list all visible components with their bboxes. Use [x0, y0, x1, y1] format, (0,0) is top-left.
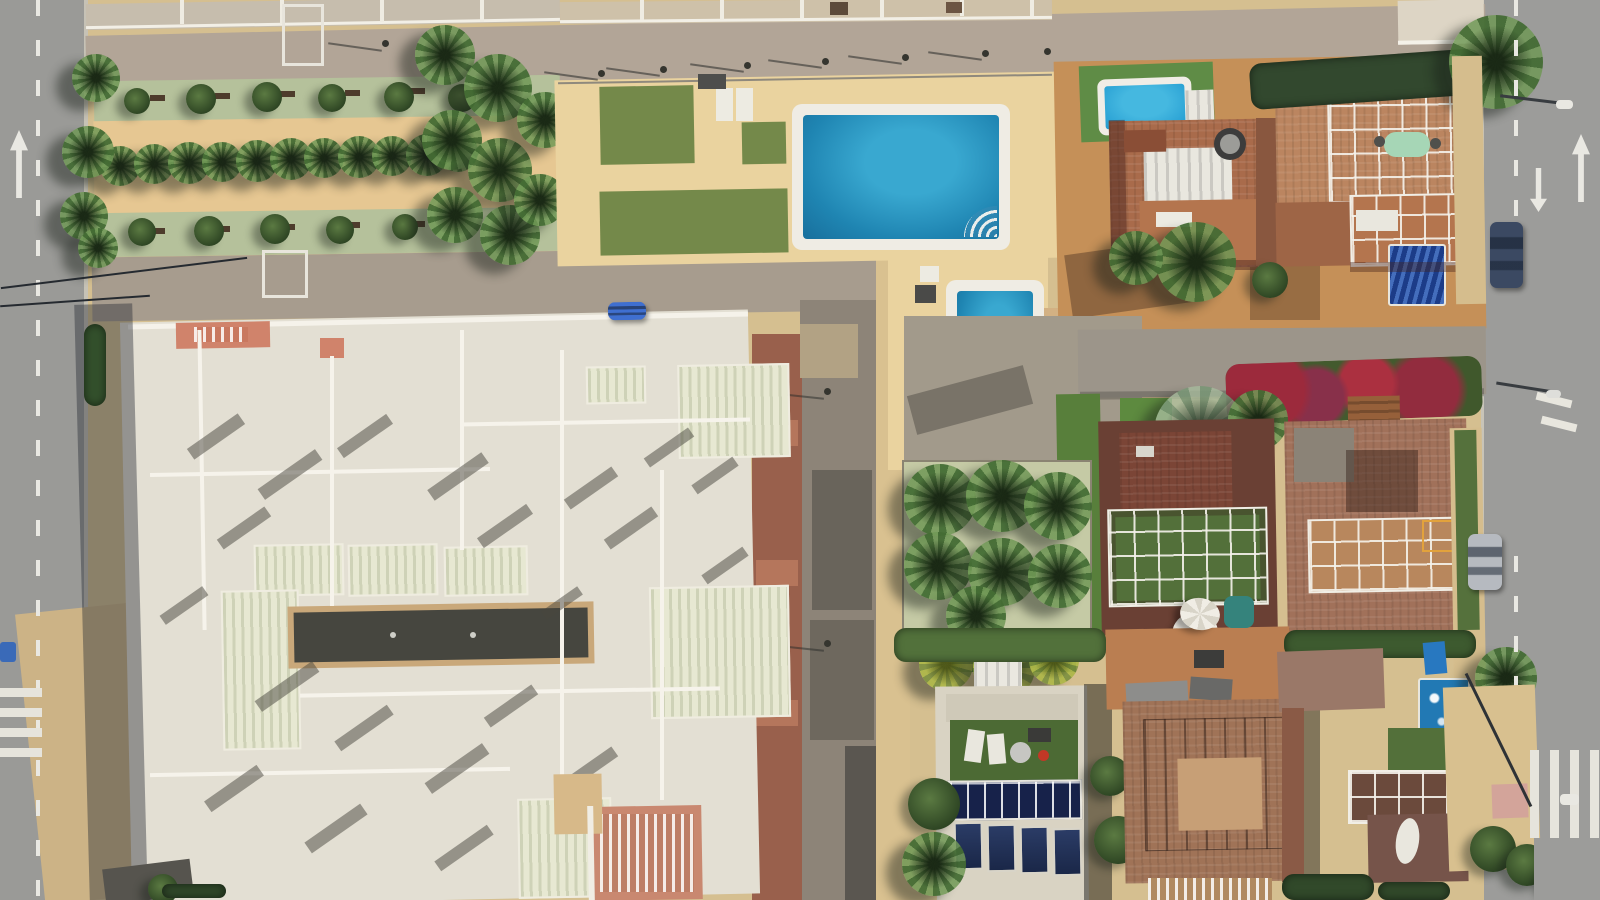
- villa5-solar-array: [948, 779, 1082, 820]
- yard-palm: [1156, 222, 1236, 302]
- park-tree: [392, 214, 418, 240]
- park-pergola-frame: [262, 250, 308, 298]
- garden-hedge: [894, 628, 1106, 662]
- park-tree: [128, 218, 156, 246]
- villa5-flowers: [1038, 750, 1049, 761]
- villa2-chair: [1430, 138, 1441, 149]
- silver-car: [1468, 534, 1502, 590]
- villa5-solar-panel: [987, 824, 1017, 872]
- parapet-line: [660, 470, 664, 800]
- villa7-pool-gear: [1423, 641, 1448, 675]
- villa2-loungers: [1356, 210, 1398, 231]
- parapet-line: [560, 350, 564, 790]
- tan-terrace-south: [553, 774, 602, 835]
- dirt-patch: [800, 324, 858, 378]
- top-doorway: [830, 2, 848, 15]
- park-tree: [318, 84, 346, 112]
- villa5-solar-panel: [1020, 826, 1050, 874]
- park-tree: [186, 84, 216, 114]
- street-palm: [902, 832, 966, 896]
- roadside-palm: [62, 126, 114, 178]
- salmon-stairs: [194, 327, 248, 342]
- top-divider: [480, 0, 484, 22]
- villa6-court: [1177, 757, 1262, 830]
- street-lamp: [1044, 48, 1051, 55]
- villa7-bushes: [1378, 882, 1450, 900]
- park-bench: [150, 95, 165, 101]
- villa2-south-shadow: [1350, 262, 1466, 272]
- top-doorway: [946, 2, 962, 13]
- lawn-upper: [599, 85, 694, 165]
- street-lamp: [660, 66, 667, 73]
- street-palm-shadow: [810, 620, 874, 740]
- street-lamp: [902, 54, 909, 61]
- lane-dash: [36, 0, 40, 900]
- villa2-pool: [1388, 244, 1446, 306]
- garden-palm: [1028, 544, 1092, 608]
- villa3-upper-roof: [1119, 431, 1232, 519]
- top-divider: [180, 0, 184, 24]
- villa4-court-shadow: [1346, 450, 1418, 512]
- top-divider: [380, 0, 384, 22]
- villa7-west-wall: [1282, 708, 1304, 882]
- street-bush: [908, 778, 960, 830]
- street-lamp: [982, 50, 989, 57]
- salmon-roof: [320, 338, 344, 358]
- park-palm-cluster: [427, 187, 483, 243]
- sidewalk-east-top: [1452, 56, 1486, 304]
- garden-palm: [1024, 472, 1092, 540]
- hedge-nw: [84, 324, 106, 406]
- park-pergola-frame: [282, 4, 324, 66]
- lawn-upper-right: [742, 122, 787, 165]
- dark-car: [1490, 222, 1523, 288]
- skylight-panel: [649, 585, 791, 719]
- skylight-panel: [348, 543, 439, 597]
- villa7-bushes: [1282, 874, 1374, 900]
- park-tree: [326, 216, 354, 244]
- park-bench: [280, 91, 295, 97]
- yard-palm: [1109, 231, 1163, 285]
- street-palm-shadow: [812, 470, 872, 610]
- garden-palm: [904, 464, 976, 536]
- street-lamp: [824, 640, 831, 647]
- street-lamp: [744, 62, 751, 69]
- sun-lounger: [716, 88, 733, 121]
- top-divider: [720, 0, 724, 20]
- villa3-skylight: [1136, 446, 1154, 457]
- top-divider: [800, 0, 804, 18]
- park-tree: [194, 216, 224, 246]
- skylight-panel: [677, 363, 791, 459]
- sw-hedge: [162, 884, 226, 898]
- villa6-steps: [1148, 878, 1272, 900]
- roadside-palm: [72, 54, 120, 102]
- street-lamp: [824, 388, 831, 395]
- park-bench: [215, 93, 230, 99]
- street-sign-blue: [0, 642, 16, 662]
- crosswalk-sw: [0, 688, 42, 762]
- pool-equipment-box: [698, 74, 726, 89]
- park-tree: [252, 82, 282, 112]
- road-corner-se: [1534, 838, 1600, 900]
- atrium-vent: [470, 632, 476, 638]
- lamp-head: [1546, 390, 1561, 398]
- aerial-photo: [0, 0, 1600, 900]
- villa5-lounger: [987, 733, 1007, 764]
- villa5-court: [946, 694, 1078, 722]
- street-lamp: [382, 40, 389, 47]
- lawn-east: [1454, 430, 1479, 630]
- walk-landing: [756, 560, 798, 586]
- yard-bush: [1252, 262, 1288, 298]
- skylight-panel: [586, 365, 647, 404]
- parapet-line: [330, 356, 334, 606]
- lamp-head: [1556, 100, 1573, 109]
- villa4-gray-roof: [1294, 428, 1354, 482]
- villa-courtyard: [1256, 118, 1278, 266]
- villa2-chair: [1374, 136, 1385, 147]
- salmon-roof-ridges: [600, 814, 694, 892]
- pool-equipment-box: [915, 285, 936, 303]
- park-bench: [345, 90, 360, 96]
- street-lamp: [822, 58, 829, 65]
- villa2-table: [1384, 132, 1430, 157]
- villa7-pink-roof: [1277, 648, 1385, 712]
- villa5-chair: [1028, 728, 1051, 742]
- atrium-vent: [390, 632, 396, 638]
- villa1-hot-tub-cover: [1220, 134, 1240, 154]
- top-divider: [880, 0, 884, 18]
- street-lamp: [598, 70, 605, 77]
- water-tank: [1224, 596, 1254, 628]
- top-divider: [640, 0, 644, 20]
- park-tree: [260, 214, 290, 244]
- villa1-table: [1124, 130, 1166, 153]
- top-divider: [1030, 0, 1034, 16]
- villa2-west-wing: [1275, 201, 1358, 266]
- skylight-panel: [444, 545, 529, 596]
- villa5-table: [1010, 742, 1031, 763]
- lamp-head: [1560, 794, 1579, 805]
- blue-car: [608, 302, 646, 321]
- villa6-box: [1194, 650, 1224, 668]
- park-tree: [384, 82, 414, 112]
- villa6-clutter: [1189, 677, 1232, 702]
- sun-lounger: [920, 266, 939, 282]
- roadside-palm: [78, 228, 118, 268]
- park-tree: [124, 88, 150, 114]
- parapet-line: [460, 330, 464, 550]
- villa5-solar-panel: [1053, 828, 1083, 876]
- villa3-conservatory-frame: [1107, 507, 1269, 608]
- lawn-lower: [599, 188, 788, 255]
- sun-lounger: [736, 88, 753, 121]
